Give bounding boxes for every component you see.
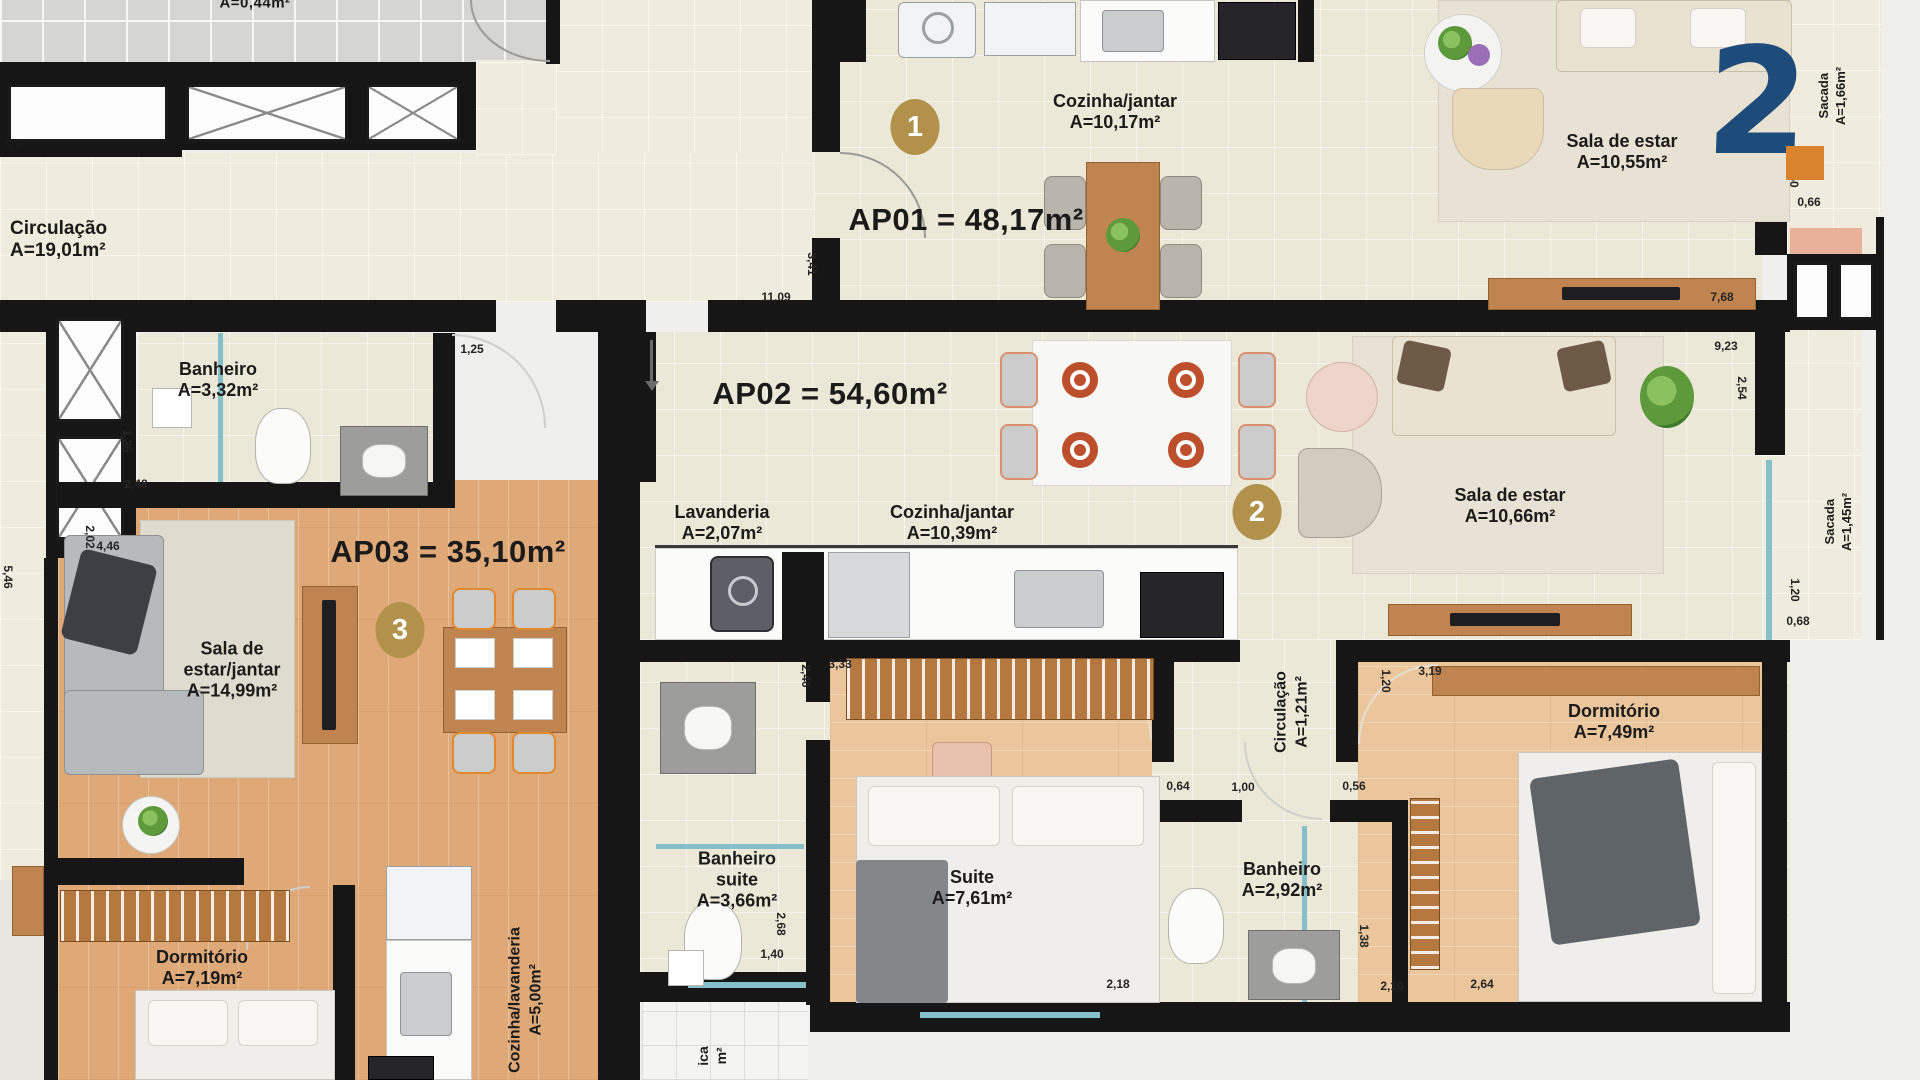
blanket-dormitorio-ap02: [1529, 758, 1701, 945]
toilet-banheiro-ap03: [255, 408, 311, 484]
hall-cabinet-ap03: [12, 866, 44, 936]
dimension-2-02: 2,02: [83, 525, 97, 548]
dimension-9-23: 9,23: [1714, 339, 1737, 353]
sofa-chaise-ap03: [64, 690, 204, 775]
plate-ap02: [1062, 362, 1098, 398]
stove-kitchen-ap03: [368, 1056, 434, 1080]
corridor-floor: [0, 153, 814, 302]
pillow-suite: [1012, 786, 1144, 846]
chair-ap01: [1160, 176, 1202, 230]
stove-ap02: [1140, 572, 1224, 638]
label-cut-top: A=0,44m²: [219, 0, 290, 12]
dining-table-ap02: [1032, 340, 1232, 486]
sink-ap02: [1014, 570, 1104, 628]
dimension-0-56: 0,56: [1342, 779, 1365, 793]
dimension-0-64: 0,64: [1166, 779, 1189, 793]
wall: [44, 558, 58, 1080]
dimension-11-09: 11,09: [761, 290, 790, 304]
wall: [44, 858, 244, 885]
wall: [0, 148, 182, 157]
table-plant-ap01: [1106, 218, 1140, 252]
glass-line: [1766, 460, 1772, 640]
plant-ap02: [1640, 366, 1694, 428]
label-suite: SuiteA=7,61m²: [932, 867, 1013, 909]
sacada-sill: [1790, 228, 1862, 254]
basin-banheiro-ap03: [362, 444, 406, 478]
wardrobe-dormitorio-ap02: [1410, 798, 1440, 970]
dimension-2-10: 2,10: [1380, 979, 1403, 993]
area-tecnica-floor: [642, 1002, 808, 1080]
shower-tray-banheiro-suite: [668, 950, 704, 986]
wall: [840, 0, 866, 62]
dimension-2-68: 2,68: [774, 912, 788, 935]
corridor-window-x: [366, 84, 460, 142]
side-table-ap02: [1306, 362, 1378, 432]
pillow-dormitorio-ap02: [1712, 762, 1756, 994]
flowers-ap01: [1438, 26, 1472, 60]
pillow-suite: [868, 786, 1000, 846]
label-banheiro-suite: BanheirosuiteA=3,66m²: [697, 849, 778, 912]
plate-ap02: [1062, 432, 1098, 468]
label-dormitorio-ap03: DormitórioA=7,19m²: [156, 947, 248, 989]
cabinet-kitchen-ap03: [386, 866, 472, 940]
label-dormitorio-ap02: DormitórioA=7,49m²: [1568, 701, 1660, 743]
sink-ap01: [1102, 10, 1164, 52]
logo-square: [1786, 146, 1824, 180]
washer-door-ap01: [922, 12, 954, 44]
armchair-ap01: [1452, 88, 1544, 170]
chair-ap02: [1238, 424, 1276, 480]
placemat-ap03: [513, 690, 553, 720]
chair-ap02: [1000, 352, 1038, 408]
wardrobe-dormitorio-ap03: [60, 890, 290, 942]
chair-ap03: [452, 732, 496, 774]
unit-badge-2: 2: [1233, 484, 1282, 540]
wardrobe-suite: [846, 658, 1154, 720]
wall: [1152, 662, 1174, 762]
entry-arrow: [650, 340, 653, 388]
dimension-1-20: 1,20: [1379, 669, 1393, 692]
wall: [1152, 800, 1242, 822]
tray-greens-ap03: [138, 806, 168, 836]
label-sala-estar-ap02: Sala de estarA=10,66m²: [1454, 485, 1565, 527]
unit-badge-1: 1: [891, 99, 940, 155]
wall: [1336, 640, 1790, 662]
fridge-ap02: [828, 552, 910, 638]
tv-ap03: [322, 600, 336, 730]
label-lavanderia-ap02: LavanderiaA=2,07m²: [674, 502, 769, 544]
dimension-4-46: 4,46: [96, 539, 119, 553]
dimension-3-41: 3,41: [805, 252, 819, 275]
label-cozinha-jantar-ap02: Cozinha/jantarA=10,39m²: [890, 502, 1014, 544]
flowers-purple-ap01: [1468, 44, 1490, 66]
dimension-2-64: 2,64: [1470, 977, 1493, 991]
basin-banheiro-ap02: [1272, 948, 1316, 984]
corridor-window: [8, 84, 168, 142]
brand-logo: 2: [1706, 28, 1809, 176]
chair-ap03: [512, 588, 556, 630]
dimension-1-25: 1,25: [460, 342, 483, 356]
label-ap01-title: AP01 = 48,17m²: [848, 202, 1083, 238]
chair-ap02: [1000, 424, 1038, 480]
wall: [598, 308, 640, 1080]
label-cut-bottom: icam²: [695, 1046, 729, 1065]
chair-ap01: [1160, 244, 1202, 298]
chair-ap01: [1044, 244, 1086, 298]
fridge-ap01: [984, 2, 1076, 56]
sacada-window: [1838, 262, 1874, 320]
placemat-ap03: [513, 638, 553, 668]
floor-plan: 2 CirculaçãoA=19,01m²AP01 = 48,17m²Cozin…: [0, 0, 1920, 1080]
placemat-ap03: [455, 690, 495, 720]
dimension-2-40: 2,40: [799, 664, 813, 687]
label-cozinha-lavanderia-ap03: Cozinha/lavanderiaA=5,00m²: [506, 927, 545, 1073]
dimension-5-46: 5,46: [1, 565, 15, 588]
label-circulacao-hall: CirculaçãoA=19,01m²: [10, 218, 107, 262]
wall: [1298, 0, 1314, 62]
label-sacada-ap01: SacadaA=1,66m²: [1816, 67, 1848, 125]
wall: [812, 0, 840, 152]
window-line: [920, 1012, 1100, 1018]
wall: [1755, 330, 1785, 455]
dimension-1-00: 1,00: [1231, 780, 1254, 794]
elevator-shaft: [56, 318, 124, 422]
chair-ap02: [1238, 352, 1276, 408]
dimension-1-40: 1,40: [760, 947, 783, 961]
dimension-2-54: 2,54: [1735, 376, 1749, 399]
label-ap02-title: AP02 = 54,60m²: [712, 376, 947, 412]
sacada-window: [1794, 262, 1830, 320]
dimension-3-19: 3,19: [1418, 664, 1441, 678]
wall: [1762, 640, 1787, 1005]
label-banheiro-ap02: BanheiroA=2,92m²: [1242, 859, 1323, 901]
dimension-7-68: 7,68: [1710, 290, 1733, 304]
toilet-banheiro-ap02: [1168, 888, 1224, 964]
label-ap03-title: AP03 = 35,10m²: [330, 534, 565, 570]
corridor-window-x: [186, 84, 348, 142]
basin-banheiro-suite: [684, 706, 732, 750]
dresser-dormitorio-ap02: [1432, 666, 1760, 696]
sink-kitchen-ap03: [400, 972, 452, 1036]
plate-ap02: [1168, 432, 1204, 468]
pillow-dormitorio-ap03: [148, 1000, 228, 1046]
dimension-2-18: 2,18: [1106, 977, 1129, 991]
wall-stub: [782, 552, 824, 640]
wall: [0, 62, 476, 76]
window-line: [688, 982, 806, 988]
label-sala-estar-jantar-ap03: Sala deestar/jantarA=14,99m²: [183, 639, 280, 702]
wall: [333, 885, 355, 1080]
wall: [1876, 217, 1884, 640]
sofa-pillow: [1580, 8, 1636, 48]
wall: [1330, 800, 1392, 822]
shower-glass: [218, 333, 223, 482]
tv-ap01: [1562, 287, 1680, 300]
label-sala-estar-ap01: Sala de estarA=10,55m²: [1566, 131, 1677, 173]
dimension-0-68: 0,68: [1786, 614, 1809, 628]
washer-door-ap02: [728, 576, 758, 606]
plate-ap02: [1168, 362, 1204, 398]
dimension-1-38: 1,38: [1357, 924, 1371, 947]
placemat-ap03: [455, 638, 495, 668]
dimension-3-33: 3,33: [828, 657, 851, 671]
chair-ap03: [512, 732, 556, 774]
label-cozinha-jantar-ap01: Cozinha/jantarA=10,17m²: [1053, 91, 1177, 133]
wall: [806, 740, 830, 1005]
wall: [1336, 662, 1358, 762]
armchair-ap02: [1298, 448, 1382, 538]
dimension-1-35: 1,35: [120, 429, 134, 452]
wall: [1392, 800, 1408, 1005]
label-circulacao-ap02: CirculaçãoA=1,21m²: [1272, 671, 1311, 753]
unit-badge-3: 3: [376, 602, 425, 658]
dimension-1-20: 1,20: [1788, 578, 1802, 601]
label-cut-left: ST: [6, 139, 22, 153]
dimension-2-48: 2,48: [124, 477, 147, 491]
pillow-dormitorio-ap03: [238, 1000, 318, 1046]
chair-ap03: [452, 588, 496, 630]
label-sacada-ap02: SacadaA=1,45m²: [1822, 493, 1854, 551]
label-banheiro-ap03: BanheiroA=3,32m²: [178, 359, 259, 401]
corridor-door-nook: [476, 60, 556, 155]
dimension-0-66: 0,66: [1797, 195, 1820, 209]
stove-ap01: [1218, 2, 1296, 60]
tv-ap02: [1450, 613, 1560, 626]
